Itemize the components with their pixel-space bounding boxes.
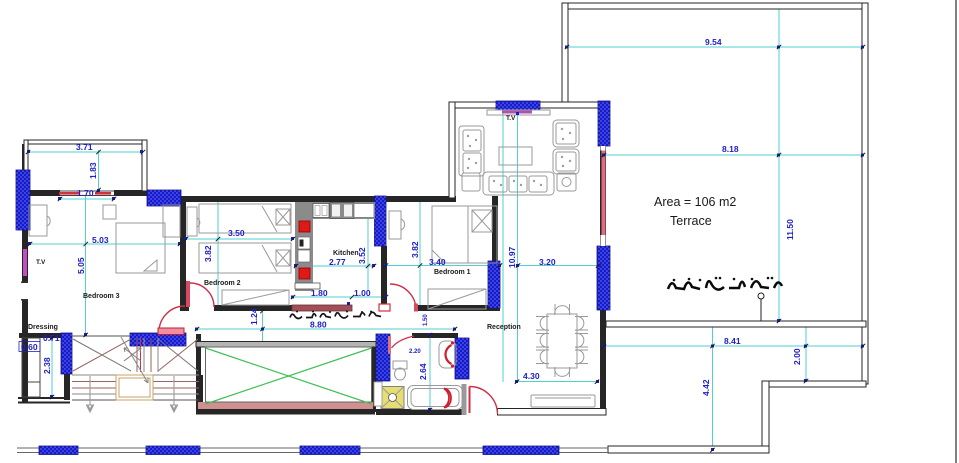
- svg-text:9.54: 9.54: [705, 37, 722, 47]
- svg-text:T.V: T.V: [36, 259, 46, 266]
- svg-text:8.41: 8.41: [724, 336, 741, 346]
- svg-text:8.18: 8.18: [722, 144, 739, 154]
- svg-text:1.00: 1.00: [354, 288, 371, 298]
- svg-text:Terrace: Terrace: [670, 214, 712, 228]
- svg-text:1.50: 1.50: [423, 314, 429, 326]
- svg-text:3.82: 3.82: [203, 245, 213, 262]
- svg-text:3.71: 3.71: [76, 142, 93, 152]
- svg-text:Bedroom 1: Bedroom 1: [434, 269, 471, 276]
- svg-text:2.38: 2.38: [42, 357, 52, 374]
- svg-text:Area = 106 m2: Area = 106 m2: [654, 195, 736, 209]
- svg-text:5.05: 5.05: [76, 257, 86, 274]
- svg-text:1.24: 1.24: [249, 308, 259, 325]
- svg-text:11.50: 11.50: [785, 219, 795, 240]
- svg-text:Reception: Reception: [487, 324, 521, 331]
- svg-text:Kitchen: Kitchen: [333, 250, 359, 257]
- svg-text:2.00: 2.00: [792, 348, 802, 365]
- svg-text:2.77: 2.77: [329, 257, 346, 267]
- svg-text:Bedroom 2: Bedroom 2: [204, 280, 241, 287]
- svg-text:5.03: 5.03: [92, 235, 109, 245]
- svg-text:8.80: 8.80: [310, 320, 327, 330]
- svg-text:3.82: 3.82: [410, 241, 420, 258]
- svg-text:1.83: 1.83: [88, 162, 98, 179]
- svg-text:3.50: 3.50: [228, 228, 245, 238]
- svg-text:T.V: T.V: [506, 115, 516, 122]
- svg-text:3.40: 3.40: [429, 257, 446, 267]
- svg-text:4.42: 4.42: [701, 379, 711, 396]
- svg-text:Bedroom 3: Bedroom 3: [83, 293, 120, 300]
- svg-text:0.60: 0.60: [21, 342, 38, 352]
- svg-text:Dressing: Dressing: [28, 324, 58, 331]
- svg-text:2.20: 2.20: [409, 349, 421, 355]
- svg-text:1.70: 1.70: [77, 188, 94, 198]
- svg-text:2.64: 2.64: [418, 363, 428, 380]
- svg-text:3.20: 3.20: [539, 257, 556, 267]
- svg-text:1.80: 1.80: [311, 288, 328, 298]
- svg-text:10.97: 10.97: [507, 246, 517, 268]
- svg-text:4.30: 4.30: [523, 371, 540, 381]
